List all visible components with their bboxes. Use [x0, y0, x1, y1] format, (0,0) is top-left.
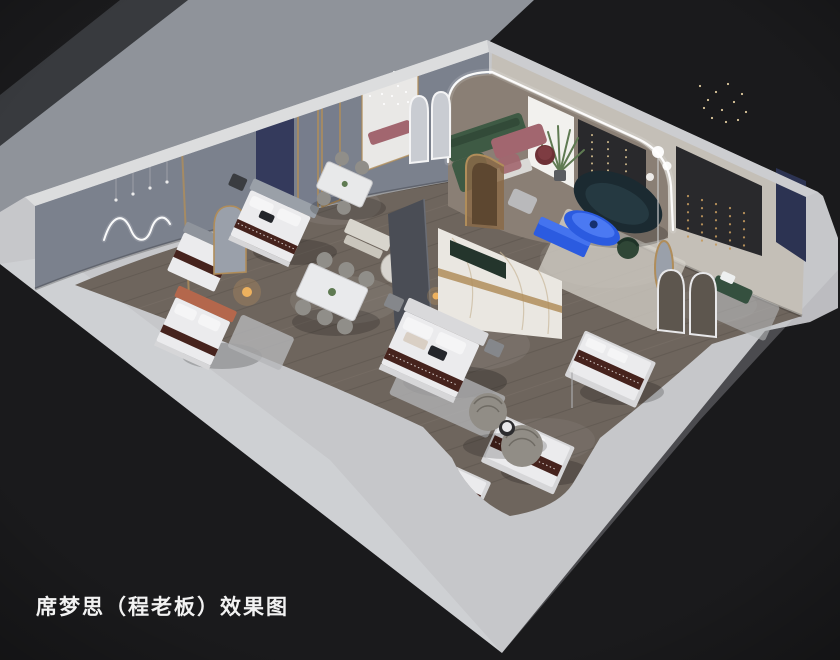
caption: 席梦思（程老板）效果图: [36, 591, 289, 621]
render-image: 席梦思（程老板）效果图: [0, 0, 840, 660]
vignette: [0, 0, 840, 660]
showroom-render: [0, 0, 840, 660]
